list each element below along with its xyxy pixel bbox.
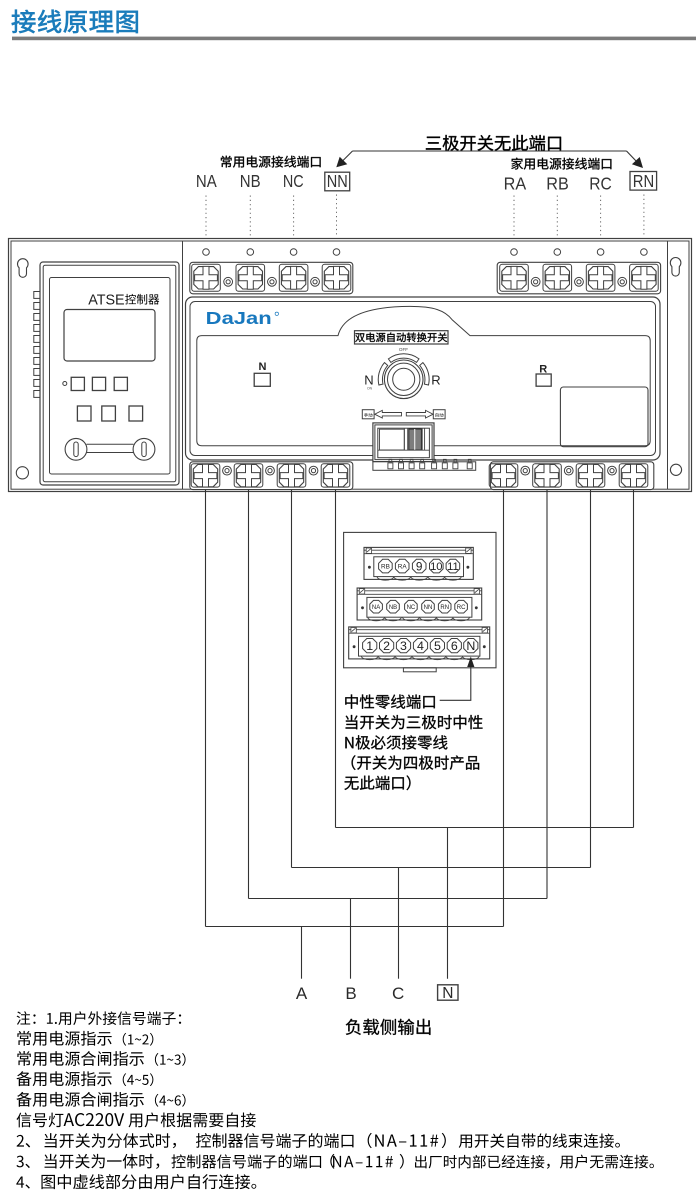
- svg-text:RB: RB: [381, 563, 390, 570]
- svg-text:A: A: [296, 984, 308, 1003]
- svg-text:NN: NN: [424, 605, 433, 611]
- svg-text:2: 2: [383, 639, 390, 653]
- svg-text:NB: NB: [240, 171, 261, 191]
- svg-text:NC: NC: [283, 171, 304, 191]
- svg-text:3: 3: [400, 639, 407, 653]
- svg-text:6: 6: [451, 639, 458, 653]
- svg-text:1: 1: [366, 639, 373, 653]
- svg-text:OFF: OFF: [399, 347, 408, 352]
- svg-text:ON: ON: [367, 386, 373, 390]
- svg-text:N: N: [442, 985, 453, 1002]
- svg-text:NA: NA: [372, 605, 380, 611]
- svg-text:DaJan: DaJan: [206, 308, 272, 328]
- svg-text:R: R: [431, 373, 440, 388]
- svg-text:5: 5: [434, 639, 441, 653]
- svg-text:RN: RN: [440, 605, 449, 611]
- svg-text:RC: RC: [457, 605, 466, 611]
- svg-text:NB: NB: [389, 605, 397, 611]
- svg-text:9: 9: [416, 559, 423, 573]
- svg-text:NN: NN: [327, 171, 348, 191]
- svg-text:NC: NC: [407, 605, 416, 611]
- svg-text:RA: RA: [398, 563, 408, 570]
- svg-text:ATSE: ATSE: [88, 291, 124, 308]
- svg-text:4: 4: [417, 639, 424, 653]
- svg-text:NA: NA: [196, 171, 217, 191]
- svg-text:RA: RA: [504, 173, 527, 193]
- svg-text:B: B: [345, 984, 356, 1003]
- svg-text:N: N: [259, 361, 267, 373]
- svg-text:11: 11: [447, 561, 459, 573]
- svg-text:10: 10: [430, 561, 442, 573]
- svg-text:N: N: [364, 373, 373, 388]
- svg-text:RN: RN: [633, 171, 654, 191]
- svg-text:RC: RC: [589, 173, 612, 193]
- svg-text:N: N: [466, 639, 475, 653]
- svg-text:RB: RB: [546, 173, 569, 193]
- svg-text:C: C: [392, 984, 404, 1003]
